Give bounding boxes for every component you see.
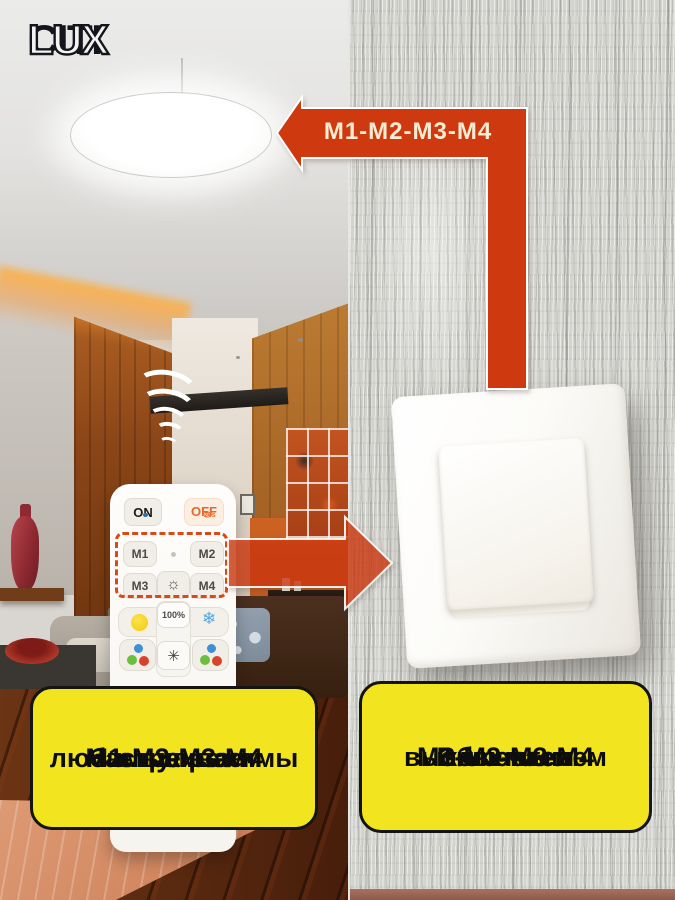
rgb-mode-icon — [126, 644, 150, 666]
right-note: Включаем М1-М2-М3-М4 обычным выключателе… — [359, 681, 652, 833]
red-bowl — [5, 638, 59, 664]
wall-switch-plate — [391, 383, 641, 669]
warm-light-button[interactable] — [131, 614, 148, 631]
floor-strip — [350, 889, 675, 900]
decor-candle — [294, 581, 301, 591]
rgb-cycle-button[interactable] — [192, 639, 229, 671]
logo-lux: LUX — [28, 16, 108, 64]
night-mode-button[interactable]: ✳ — [157, 641, 190, 670]
rgb-mode-button[interactable] — [119, 639, 156, 671]
on-button-label: ON — [133, 505, 153, 520]
rgb-cycle-icon — [199, 644, 223, 666]
poster-grid — [286, 428, 348, 538]
vase-shelf — [0, 588, 64, 601]
lamp-wire — [181, 58, 183, 96]
left-note: Настраиваем любимые режимы М1-М2-М3-М4 с… — [30, 686, 318, 830]
off-timer-value: 20s — [204, 512, 216, 520]
recessed-light — [298, 338, 303, 342]
ceiling-lamp — [70, 92, 272, 178]
decor-candle — [282, 578, 290, 591]
memory-buttons-group — [115, 532, 228, 598]
wall-switch-rocker[interactable] — [438, 438, 594, 613]
on-button[interactable]: ON — [124, 498, 162, 526]
recessed-light — [236, 356, 240, 359]
snowflake-icon: ❄ — [202, 609, 216, 629]
modes-arrow-label: М1-М2-М3-М4 — [306, 118, 510, 146]
note-line: выключателем — [404, 740, 607, 775]
note-line: с пульта — [117, 741, 230, 776]
starburst-icon: ✳ — [167, 647, 180, 665]
wall-sign — [240, 494, 255, 515]
off-button[interactable]: OFF ◷20s — [184, 498, 224, 526]
promo-banner: ON OFF ◷20s M1 M2 M3 ☼ M4 ❄ 100% ✳ М1-М2… — [0, 0, 675, 900]
red-vase — [11, 516, 39, 590]
full-brightness-button[interactable]: 100% — [157, 602, 190, 628]
